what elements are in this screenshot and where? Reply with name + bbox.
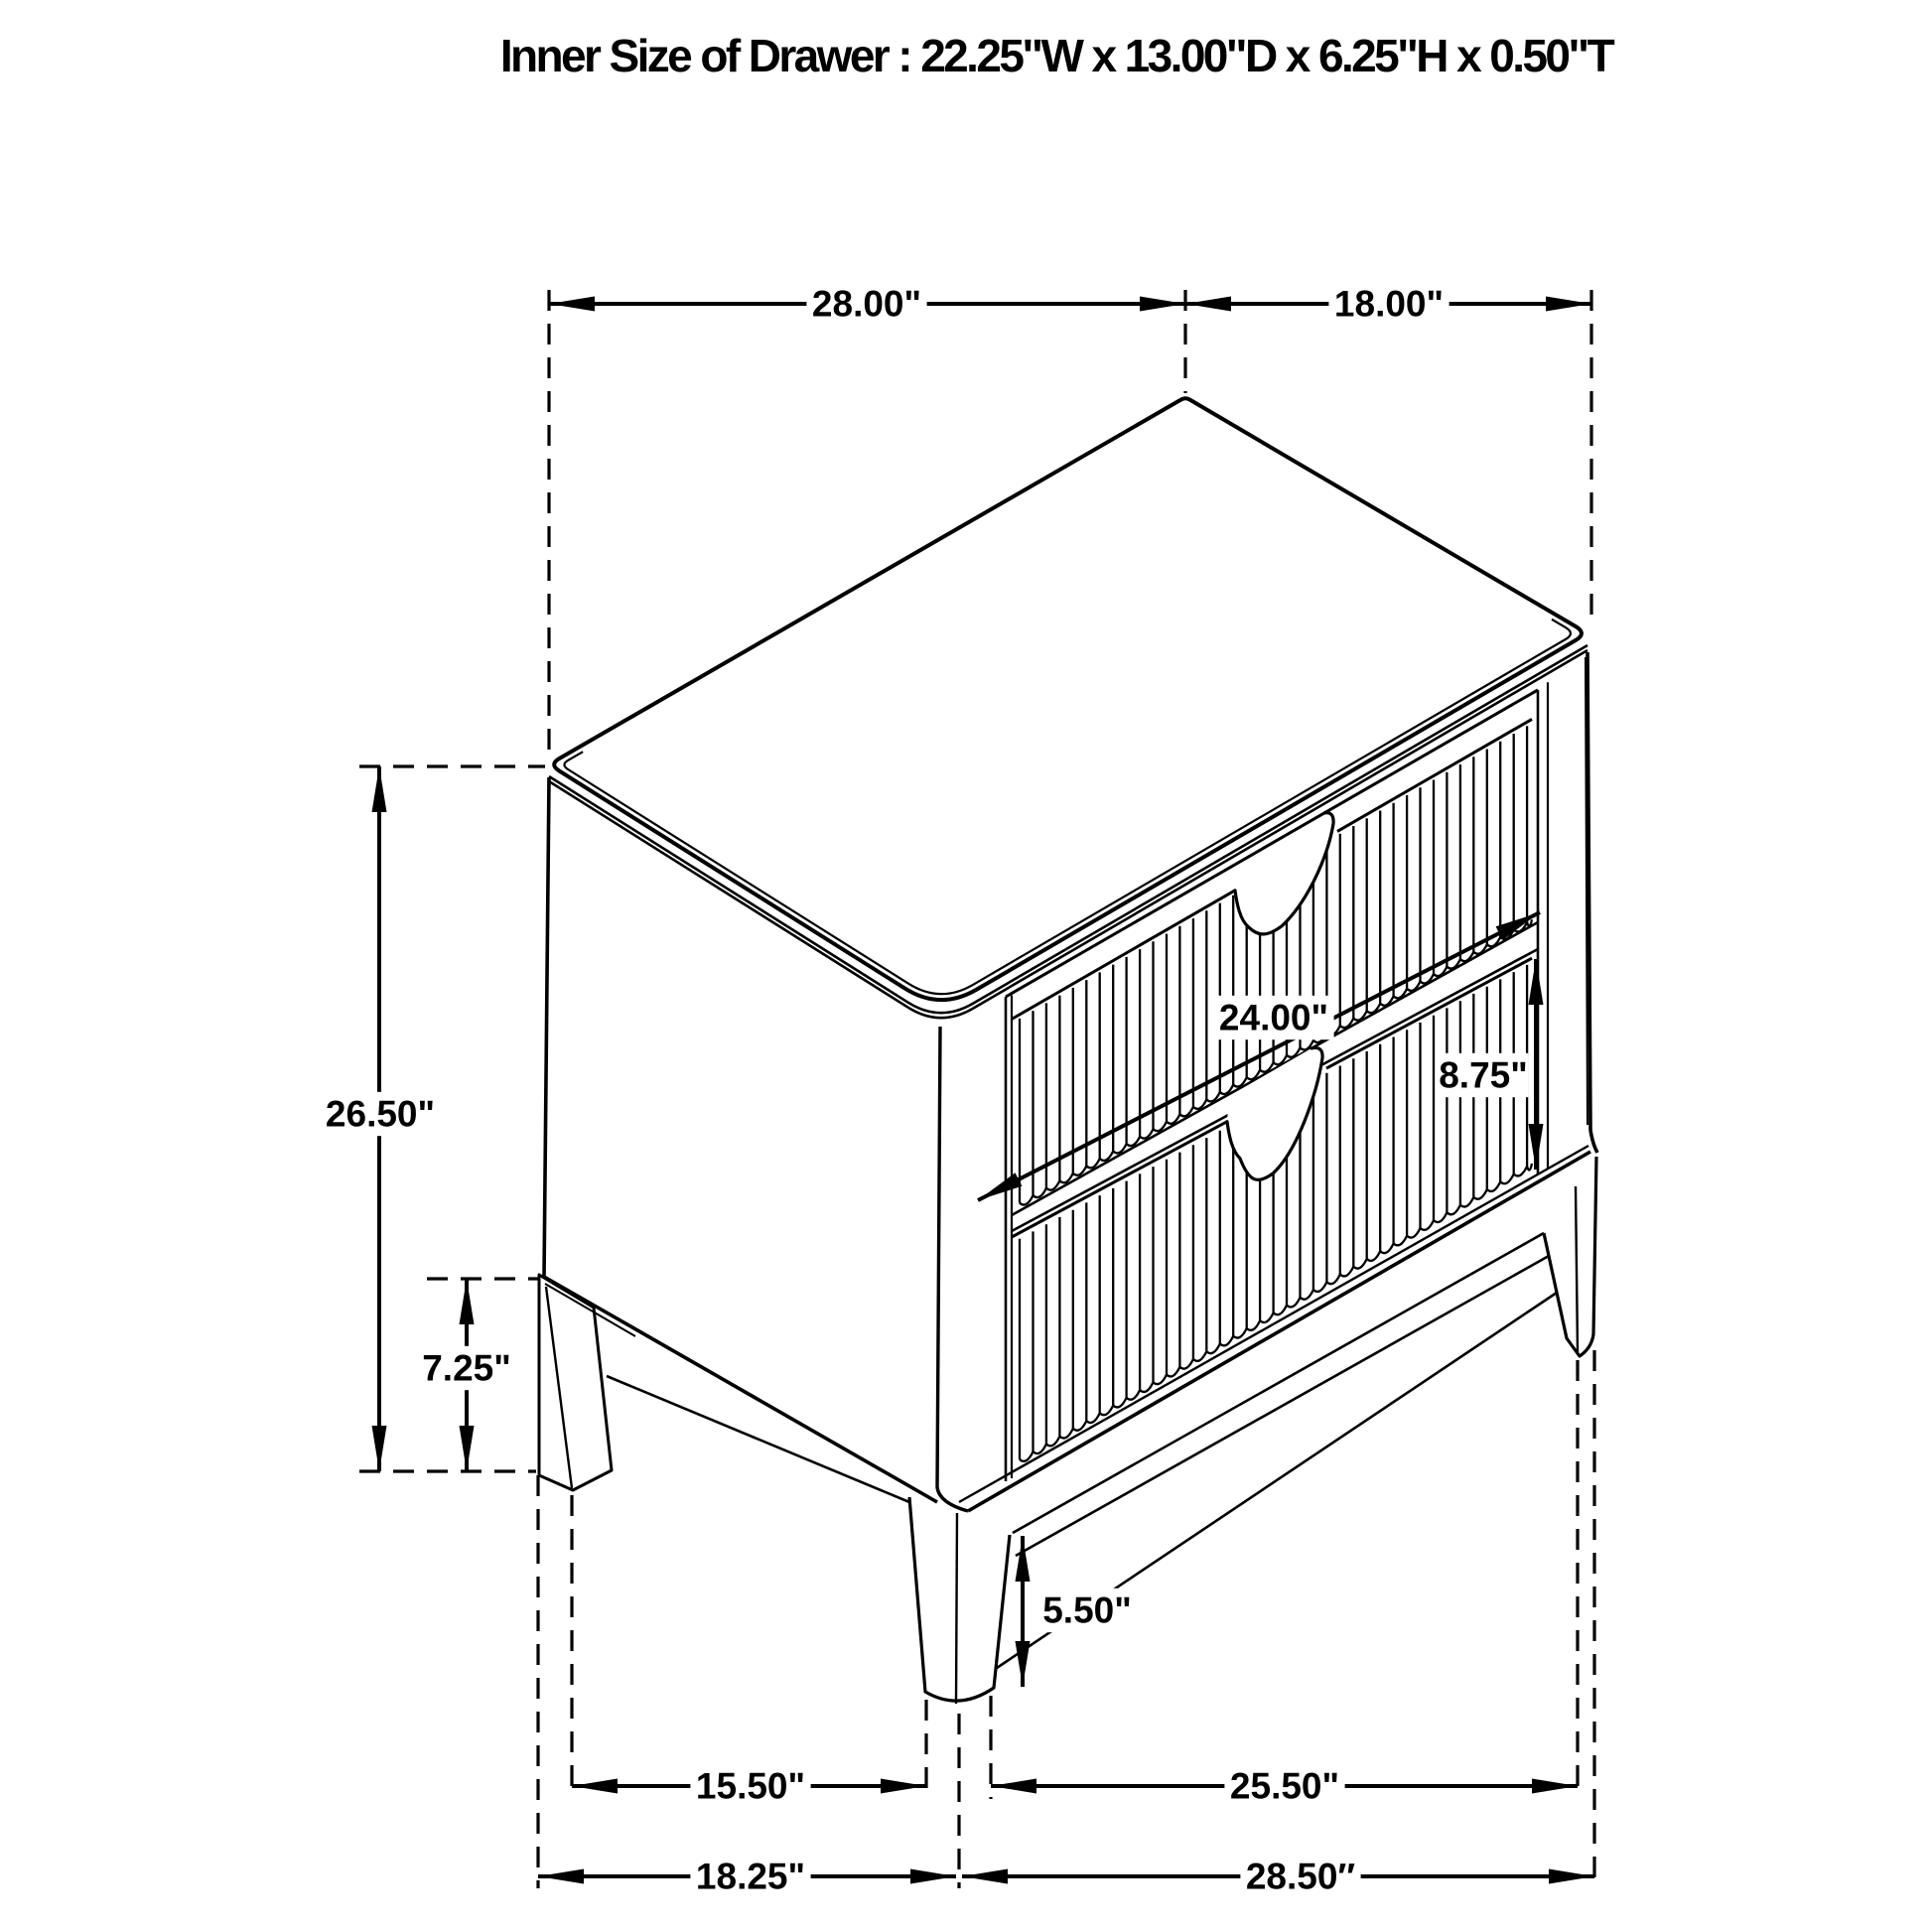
svg-text:15.50": 15.50" bbox=[696, 1766, 805, 1807]
svg-text:24.00": 24.00" bbox=[1219, 998, 1328, 1038]
svg-text:25.50": 25.50" bbox=[1230, 1766, 1339, 1807]
svg-text:18.00": 18.00" bbox=[1334, 284, 1444, 325]
svg-text:Inner Size of Drawer : 22.25"W: Inner Size of Drawer : 22.25"W x 13.00"D… bbox=[500, 30, 1615, 81]
svg-text:5.50": 5.50" bbox=[1042, 1590, 1132, 1631]
svg-text:18.25": 18.25" bbox=[696, 1857, 805, 1897]
svg-text:7.25": 7.25" bbox=[422, 1348, 511, 1389]
svg-text:26.50": 26.50" bbox=[326, 1094, 435, 1135]
svg-text:28.00": 28.00" bbox=[812, 284, 921, 325]
svg-text:8.75": 8.75" bbox=[1439, 1055, 1528, 1096]
svg-text:28.50″: 28.50″ bbox=[1246, 1857, 1356, 1897]
